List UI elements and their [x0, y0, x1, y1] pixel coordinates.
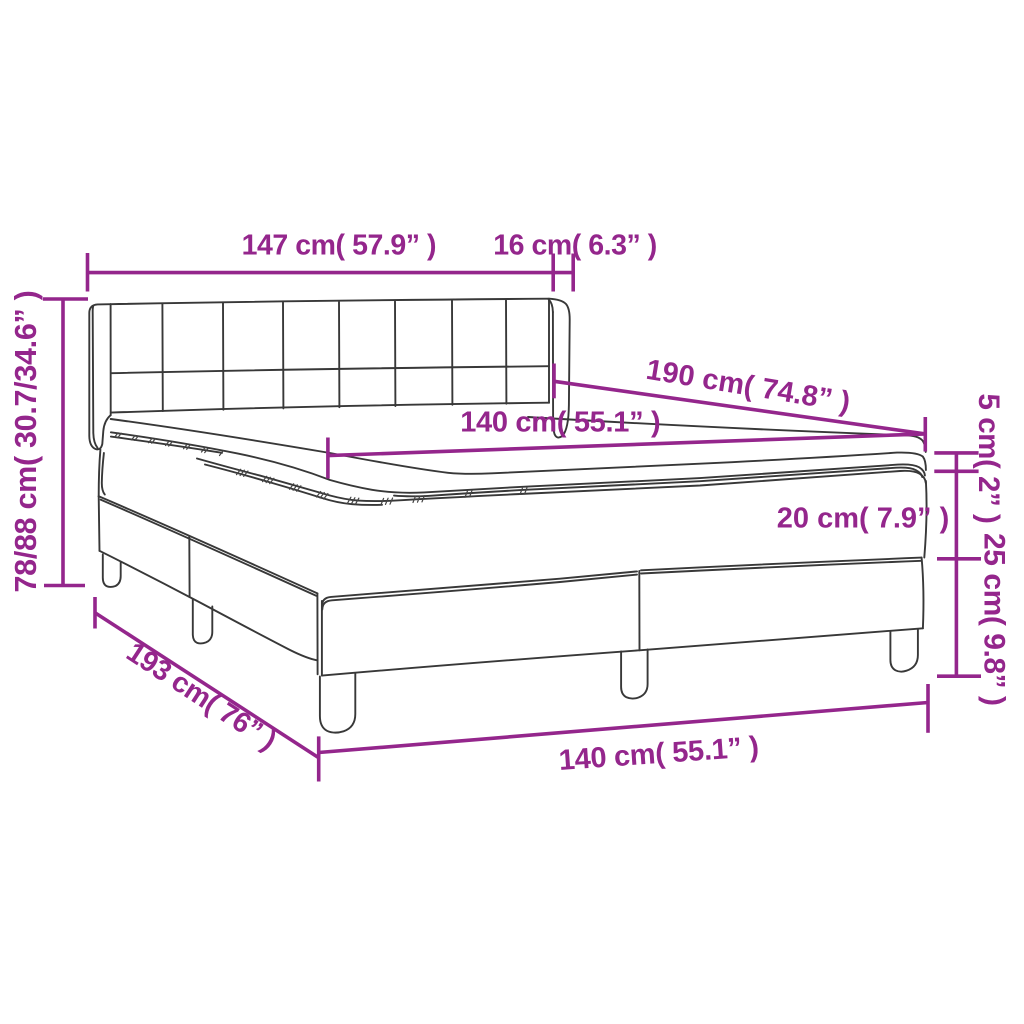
- svg-text:147 cm( 57.9” ): 147 cm( 57.9” ): [242, 230, 436, 262]
- svg-text:5 cm( 2” ): 5 cm( 2” ): [972, 394, 1005, 524]
- svg-text:16 cm( 6.3” ): 16 cm( 6.3” ): [493, 230, 657, 262]
- svg-text:140 cm( 55.1” ): 140 cm( 55.1” ): [460, 406, 660, 438]
- svg-text:20 cm( 7.9” ): 20 cm( 7.9” ): [777, 502, 949, 534]
- svg-text:78/88 cm( 30.7/34.6” ): 78/88 cm( 30.7/34.6” ): [9, 291, 43, 593]
- svg-text:25 cm( 9.8” ): 25 cm( 9.8” ): [978, 533, 1011, 706]
